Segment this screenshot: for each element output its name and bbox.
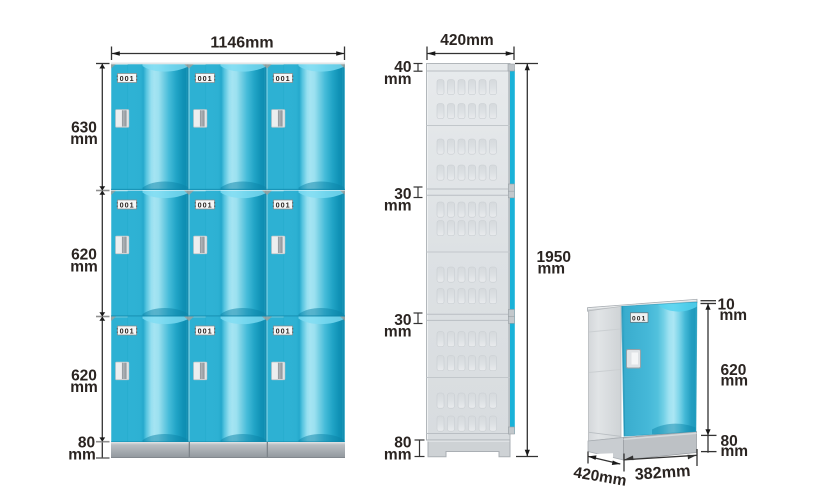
svg-text:mm: mm bbox=[384, 323, 412, 340]
svg-text:mm: mm bbox=[384, 71, 412, 88]
svg-text:mm: mm bbox=[721, 443, 749, 460]
svg-text:420mm: 420mm bbox=[572, 464, 628, 490]
svg-text:001: 001 bbox=[632, 315, 646, 322]
svg-text:mm: mm bbox=[721, 372, 749, 389]
svg-text:mm: mm bbox=[384, 197, 412, 214]
svg-text:mm: mm bbox=[384, 447, 412, 464]
svg-text:mm: mm bbox=[68, 447, 96, 464]
svg-text:mm: mm bbox=[538, 261, 566, 278]
svg-text:mm: mm bbox=[70, 131, 98, 148]
svg-text:420mm: 420mm bbox=[440, 32, 493, 49]
svg-text:mm: mm bbox=[70, 259, 98, 276]
svg-text:382mm: 382mm bbox=[634, 462, 691, 484]
svg-text:1146mm: 1146mm bbox=[210, 35, 273, 52]
svg-text:mm: mm bbox=[70, 379, 98, 396]
svg-text:mm: mm bbox=[720, 307, 748, 324]
